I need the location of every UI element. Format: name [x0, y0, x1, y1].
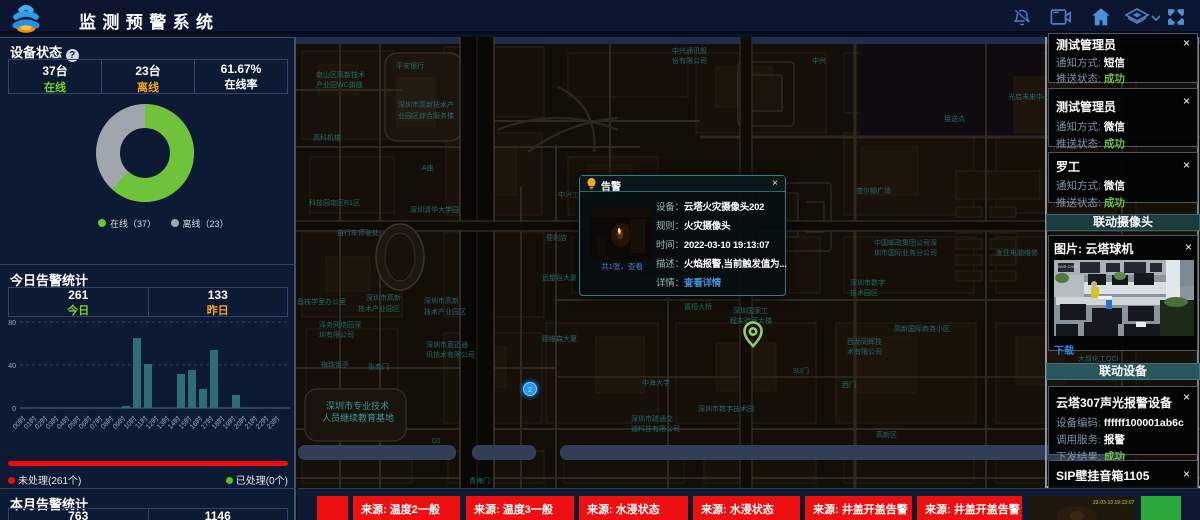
svg-text:自行车停驶处: 自行车停驶处 — [337, 228, 379, 237]
svg-text:南山区高新技术: 南山区高新技术 — [316, 70, 365, 79]
svg-text:深圳国家工: 深圳国家工 — [733, 306, 768, 315]
svg-text:高科机楼: 高科机楼 — [313, 133, 341, 142]
svg-text:中海大学: 中海大学 — [642, 378, 670, 387]
svg-text:平安银行: 平安银行 — [396, 61, 424, 70]
svg-text:NVR CH02: NVR CH02 — [1058, 264, 1079, 269]
svg-text:深圳市数字技术园: 深圳市数字技术园 — [698, 404, 754, 413]
svg-text:2: 2 — [528, 387, 532, 394]
svg-text:深圳市专业技术: 深圳市专业技术 — [326, 400, 389, 411]
svg-text:接送点: 接送点 — [944, 114, 965, 123]
svg-text:D1: D1 — [432, 438, 441, 445]
svg-text:中兴通讯股: 中兴通讯股 — [672, 46, 707, 55]
svg-text:份有限公司: 份有限公司 — [672, 56, 707, 65]
svg-text:西龙同辉技: 西龙同辉技 — [847, 337, 882, 346]
svg-text:讯技术有限公司: 讯技术有限公司 — [426, 350, 475, 359]
svg-text:深圳市高新: 深圳市高新 — [366, 293, 401, 302]
svg-text:圳有限公司: 圳有限公司 — [319, 330, 354, 339]
svg-text:技术产业园区: 技术产业园区 — [424, 307, 466, 316]
svg-text:青海门: 青海门 — [469, 476, 490, 485]
svg-text:技术园区: 技术园区 — [850, 288, 878, 297]
svg-text:查尔顿广场: 查尔顿广场 — [856, 186, 891, 195]
svg-text:3U门: 3U门 — [793, 366, 809, 375]
svg-text:张南门: 张南门 — [368, 362, 389, 371]
svg-text:圳市国际业务分公司: 圳市国际业务分公司 — [874, 248, 937, 257]
svg-text:中兴: 中兴 — [812, 56, 826, 65]
svg-text:A座: A座 — [422, 163, 434, 172]
svg-text:深圳市数字: 深圳市数字 — [850, 278, 885, 287]
svg-text:深圳清华大学园: 深圳清华大学园 — [410, 205, 459, 214]
svg-text:80: 80 — [8, 320, 16, 327]
svg-text:远望谷大厦: 远望谷大厦 — [542, 273, 577, 282]
svg-text:深圳市疏通交: 深圳市疏通交 — [631, 414, 673, 423]
svg-text:置桓大桥: 置桓大桥 — [684, 302, 712, 311]
svg-text:德维森大厦: 德维森大厦 — [542, 334, 577, 343]
svg-text:术有限公司: 术有限公司 — [847, 347, 882, 356]
svg-text:深圳市高新: 深圳市高新 — [424, 296, 459, 305]
svg-text:泽务网络园深: 泽务网络园深 — [319, 320, 361, 329]
svg-text:22-03-10 19:13:07: 22-03-10 19:13:07 — [1093, 500, 1135, 506]
svg-text:技术产业园区: 技术产业园区 — [358, 304, 400, 313]
svg-text:业园区综合服务楼: 业园区综合服务楼 — [398, 111, 454, 120]
svg-text:高新国际商务小区: 高新国际商务小区 — [894, 324, 950, 333]
svg-text:西门: 西门 — [842, 380, 856, 389]
svg-text:产业园WC旗舰: 产业园WC旗舰 — [316, 80, 363, 89]
svg-text:高新区: 高新区 — [876, 430, 897, 439]
svg-text:深圳市高新技术产: 深圳市高新技术产 — [398, 100, 454, 109]
svg-text:发住电脑维修: 发住电脑维修 — [996, 248, 1038, 257]
svg-text:便利店: 便利店 — [546, 233, 567, 242]
svg-text:通科技有限公司: 通科技有限公司 — [631, 424, 680, 433]
svg-text:中国邮政集团公司深: 中国邮政集团公司深 — [874, 238, 937, 247]
svg-text:0: 0 — [12, 406, 16, 413]
svg-text:人员继续教育基地: 人员继续教育基地 — [322, 412, 394, 423]
svg-text:深圳市直迈通: 深圳市直迈通 — [426, 340, 468, 349]
svg-text:科技园南区R1区: 科技园南区R1区 — [309, 198, 360, 207]
svg-text:梅珠街亭: 梅珠街亭 — [321, 360, 349, 369]
svg-text:40: 40 — [8, 363, 16, 370]
svg-text:昌枝学室办公室: 昌枝学室办公室 — [297, 297, 346, 306]
